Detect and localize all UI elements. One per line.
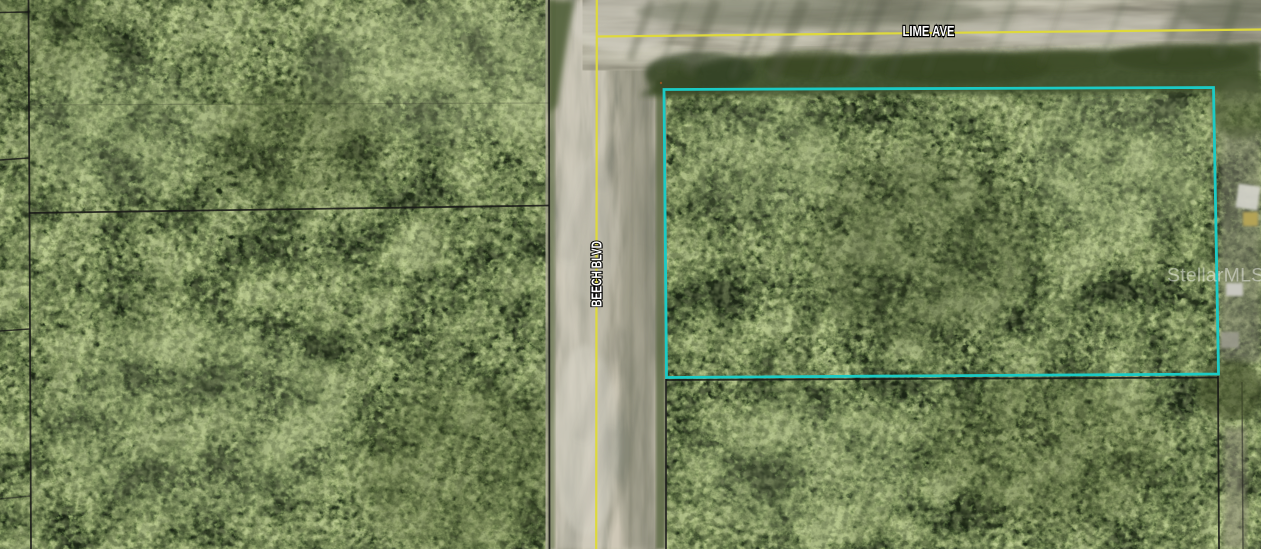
svg-text:StellarMLS: StellarMLS (1167, 265, 1261, 287)
svg-text:BEECH BLVD: BEECH BLVD (590, 241, 606, 307)
svg-text:LIME AVE: LIME AVE (903, 23, 955, 40)
